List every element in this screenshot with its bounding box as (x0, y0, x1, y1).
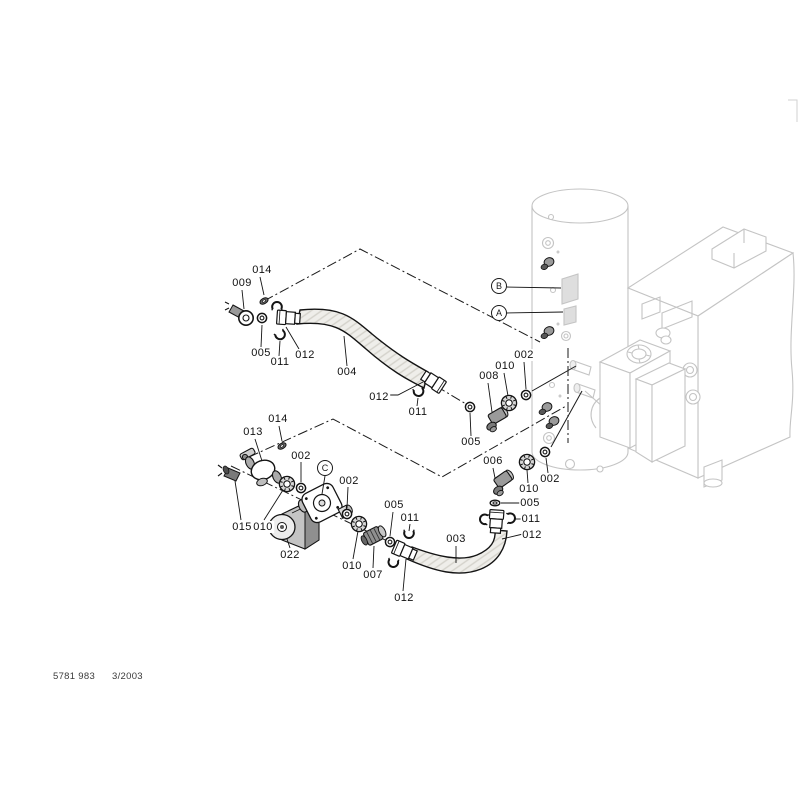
valve-013 (239, 448, 283, 488)
hose-004 (297, 309, 428, 388)
angle-fitting-015 (218, 465, 240, 481)
expansion-tank-gauge (627, 345, 651, 363)
hose-003 (407, 530, 507, 573)
tank-label-plate-a (564, 306, 576, 325)
elbow-fitting-006 (487, 469, 518, 498)
tank-inlet-fitting-group (464, 389, 532, 434)
pump-valve-assembly (218, 441, 396, 549)
hose-assembly-bottom (387, 446, 551, 573)
tank-label-plate-b (562, 274, 578, 304)
page-corner-mark (788, 100, 797, 122)
elbow-fitting-009 (225, 302, 253, 325)
parts-diagram-page: 0140090050110120040120110020100080050130… (0, 0, 800, 800)
doc-number: 5781 983 (53, 671, 95, 682)
revision-date: 3/2003 (112, 671, 143, 682)
boiler-connection-stubs (570, 361, 595, 399)
footer: 5781 9833/2003 (53, 671, 160, 682)
tank-connection-fittings (537, 256, 561, 429)
expansion-tank (570, 340, 685, 462)
hose-assembly-top (225, 296, 447, 397)
